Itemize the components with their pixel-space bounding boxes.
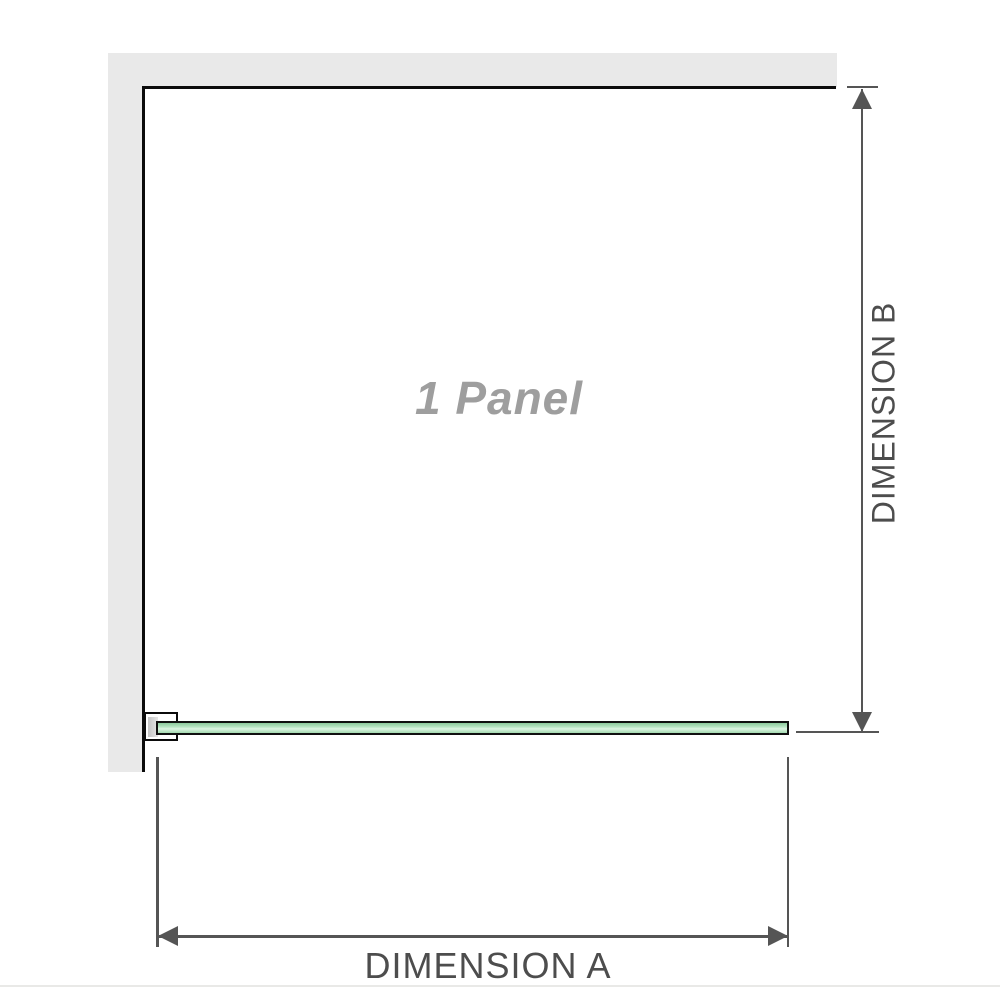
dimension-b-tick-top bbox=[847, 86, 878, 89]
dimension-b-label: DIMENSION B bbox=[866, 302, 903, 525]
wall-top bbox=[108, 53, 837, 87]
arrow-down-icon bbox=[852, 712, 872, 732]
arrow-left-icon bbox=[158, 926, 178, 946]
panel-area-label: 1 Panel bbox=[415, 371, 583, 425]
glass-panel bbox=[156, 721, 789, 735]
arrow-right-icon bbox=[768, 926, 788, 946]
panel-outline-left bbox=[142, 86, 145, 772]
dimension-a-line bbox=[158, 935, 788, 938]
panel-outline-top bbox=[142, 86, 836, 89]
dimension-a-extension-left bbox=[156, 757, 159, 947]
page-divider bbox=[0, 985, 1000, 987]
dimension-a-extension-right bbox=[787, 757, 790, 947]
dimension-b-line bbox=[861, 89, 864, 732]
dimension-a-label: DIMENSION A bbox=[364, 945, 611, 987]
arrow-up-icon bbox=[852, 89, 872, 109]
diagram-canvas: 1 Panel DIMENSION B DIMENSION A bbox=[0, 0, 1000, 1000]
wall-left bbox=[108, 53, 143, 772]
dimension-b-tick-bottom bbox=[796, 731, 879, 734]
